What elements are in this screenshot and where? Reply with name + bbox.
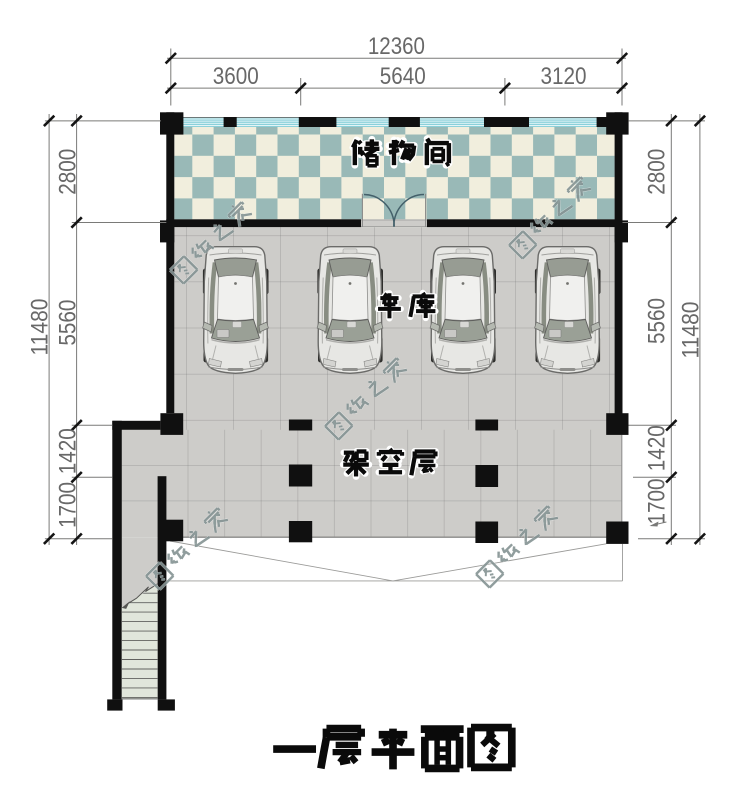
svg-text:5640: 5640 (380, 63, 426, 90)
svg-text:3600: 3600 (213, 63, 259, 90)
svg-text:11480: 11480 (677, 302, 704, 359)
svg-text:1420: 1420 (55, 428, 82, 474)
svg-text:12360: 12360 (368, 33, 425, 60)
svg-text:3120: 3120 (541, 63, 587, 90)
svg-text:2800: 2800 (55, 149, 82, 195)
svg-text:5560: 5560 (644, 298, 671, 344)
svg-text:5560: 5560 (55, 300, 82, 346)
svg-text:1700: 1700 (644, 479, 671, 525)
svg-text:1420: 1420 (644, 425, 671, 471)
svg-text:2800: 2800 (644, 149, 671, 195)
svg-text:1700: 1700 (55, 482, 82, 528)
svg-text:11480: 11480 (27, 299, 54, 356)
